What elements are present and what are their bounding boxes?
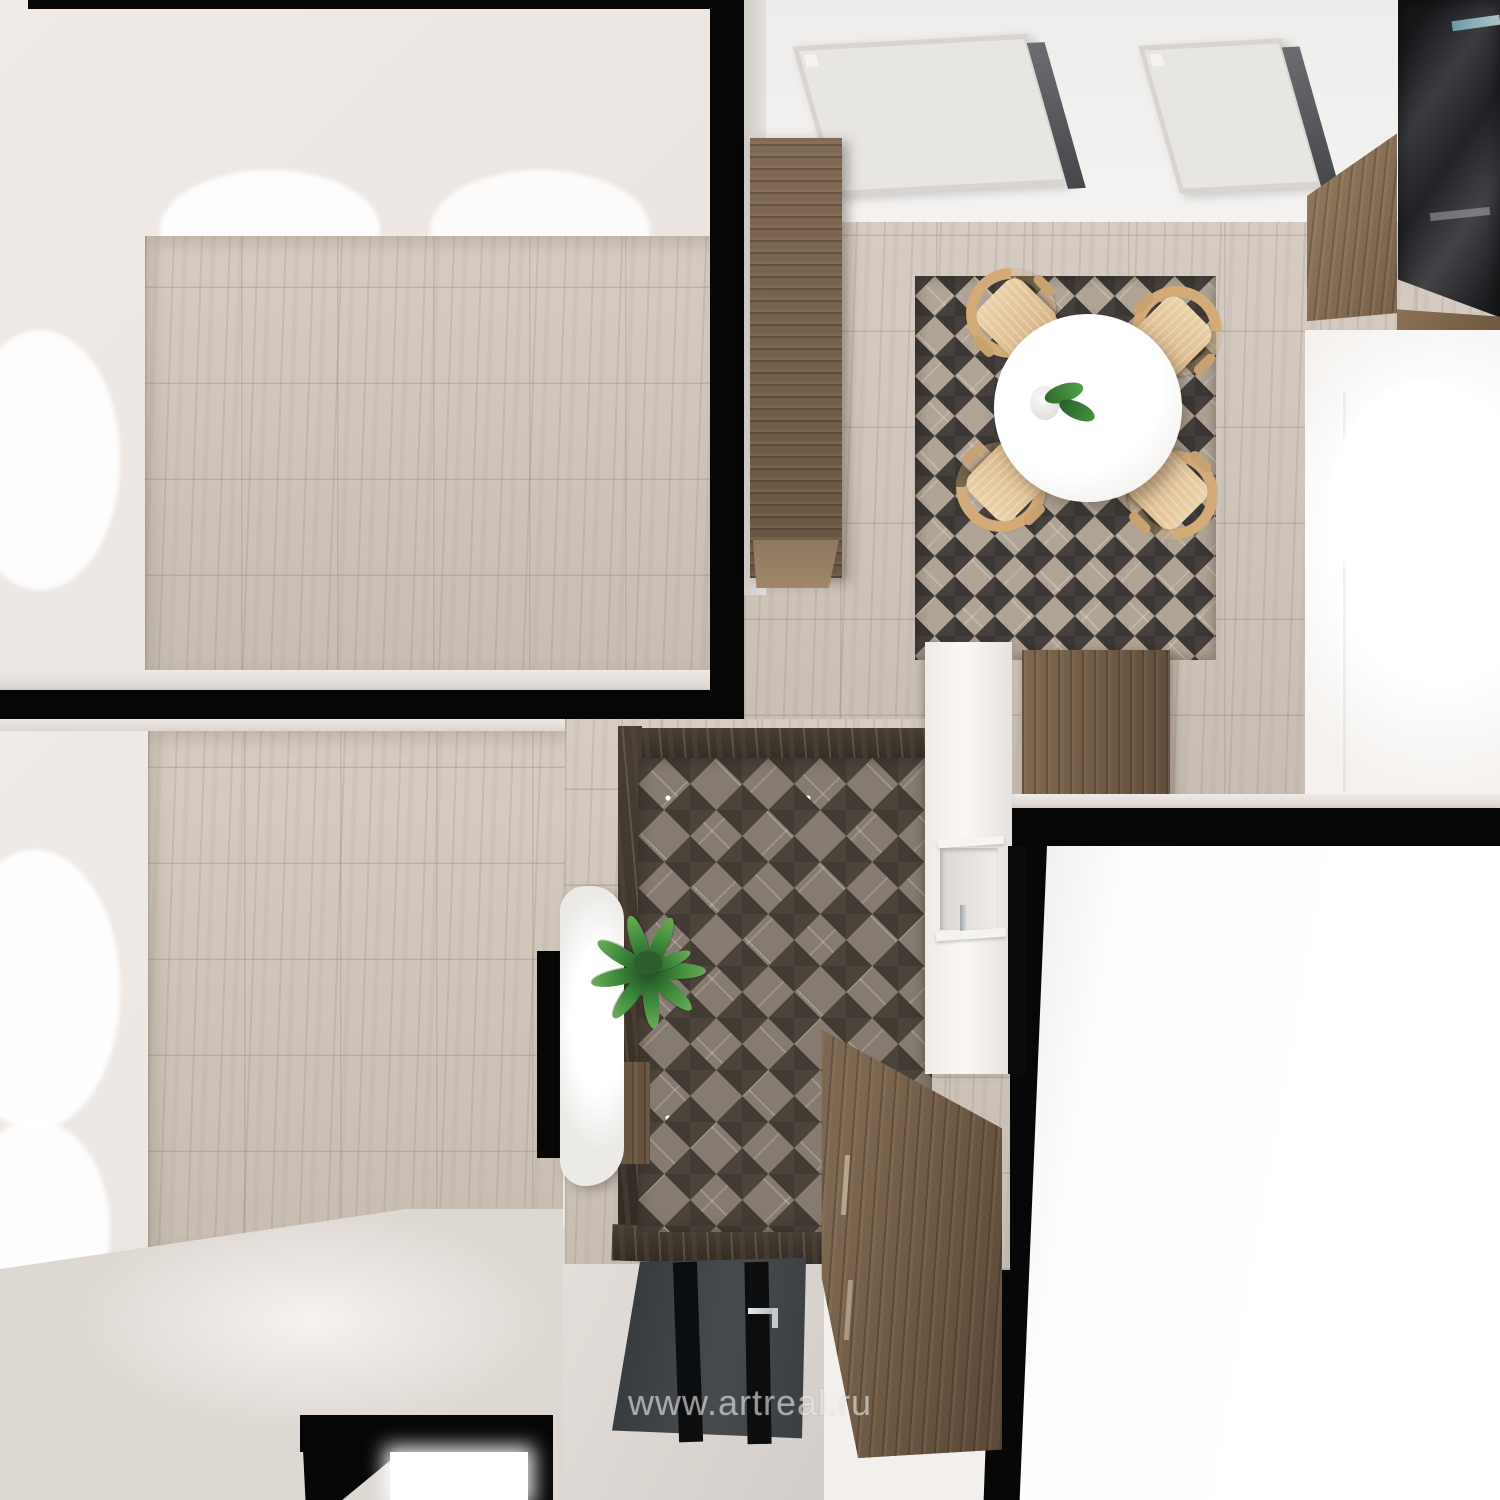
wall-niche: [940, 848, 998, 930]
bright-room: [1020, 846, 1500, 1500]
living-room-baseboard: [0, 670, 712, 690]
window-pane: [804, 54, 819, 67]
kitchen-base-cabinet: [1022, 650, 1170, 806]
tall-cabinet-front-face: [753, 540, 839, 588]
bedroom-baseboard: [0, 719, 625, 731]
console-cabinet: [560, 886, 624, 1186]
top-wall-edge: [28, 0, 712, 9]
wall-horizontal-left: [0, 690, 740, 719]
door-handle: [772, 1308, 778, 1328]
entrance-door: [610, 1258, 810, 1454]
partition-edge-shadow: [1008, 846, 1026, 1074]
wall-vertical-center: [710, 0, 744, 719]
tall-wood-cabinet: [750, 138, 842, 578]
watermark-text: www.artreal.ru: [628, 1382, 872, 1424]
window-pane: [1149, 54, 1164, 67]
hallway-border-top: [637, 728, 932, 762]
corner-wall-edge: [528, 1452, 553, 1500]
plant-center: [634, 951, 662, 975]
living-room-floor: [145, 236, 712, 672]
apartment-top-view-render: www.artreal.ru: [0, 0, 1500, 1500]
kitchen-baseboard: [1008, 794, 1500, 808]
wall-horizontal-right: [1008, 808, 1500, 846]
bright-opening: [390, 1452, 528, 1500]
